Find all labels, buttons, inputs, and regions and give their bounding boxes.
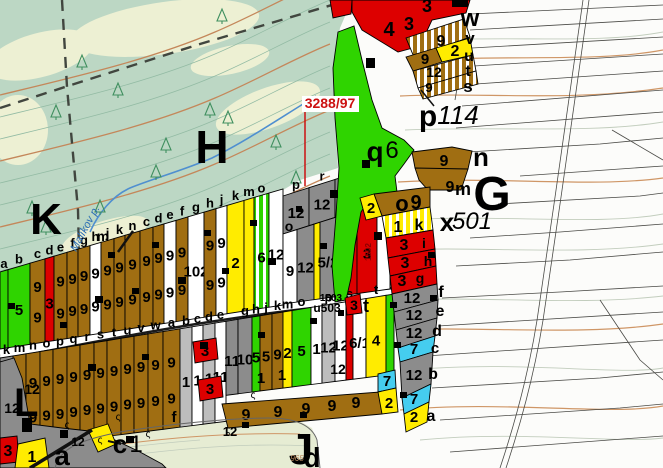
parcel-number: 9 (142, 289, 150, 306)
tick-mark (250, 220, 257, 226)
map-label: ς (251, 390, 256, 401)
map-label: ς (226, 425, 231, 436)
parcel-letter: b (182, 313, 190, 328)
parcel-letter: o (258, 180, 266, 195)
map-label: g (416, 270, 425, 286)
map-label: h (424, 253, 433, 269)
tick-mark (296, 206, 302, 212)
map-label: e (436, 303, 445, 320)
map-label: m (455, 179, 471, 199)
map-label: p (419, 100, 437, 133)
map-label: b (428, 366, 438, 383)
parcel-letter: t (374, 282, 379, 297)
parcel-number: 12 (406, 325, 423, 342)
forest-map-svg: a5b99c3d99e99f99g99h99j99k99n99c99d99e99… (0, 0, 663, 468)
parcel-letter: f (180, 204, 185, 219)
parcel-strip (80, 343, 94, 440)
parcel-letter: e (166, 207, 173, 222)
parcel-number: 9 (166, 247, 174, 264)
parcel-letter: c (143, 214, 150, 229)
parcel-number: 3 (45, 296, 53, 313)
parcel-number: 9 (80, 268, 88, 285)
parcel-number: 9 (206, 277, 214, 294)
parcel-letter: t (112, 324, 117, 339)
parcel-number: 2 (385, 395, 393, 412)
parcel-number: 3 (400, 237, 409, 254)
tick-mark (88, 364, 96, 371)
parcel-number: 1 (182, 374, 190, 391)
parcel-letter: a (0, 256, 8, 271)
map-label: 12 (71, 435, 85, 449)
parcel-number: 9 (42, 408, 50, 425)
parcel-number: 9 (154, 250, 162, 267)
parcel-number: 4 (372, 333, 381, 350)
parcel-number: 9 (242, 407, 251, 424)
parcel-number: 12 (426, 64, 442, 80)
map-label: 12 (4, 400, 20, 416)
parcel-letter: g (241, 303, 249, 318)
parcel-number: 9 (142, 253, 150, 270)
parcel-letter: n (29, 338, 37, 353)
parcel-letter: s (97, 327, 104, 342)
parcel-letter: h (206, 195, 214, 210)
parcel-number: 9 (166, 284, 174, 301)
tick-mark (200, 342, 208, 349)
parcel-number: 3 (401, 255, 410, 272)
parcel-strip (78, 246, 90, 337)
parcel-number: 9 (217, 275, 225, 292)
map-label: ς (116, 412, 121, 423)
parcel-strip (153, 224, 164, 325)
parcel-number: 10 (237, 351, 254, 368)
parcel-strip (204, 209, 216, 318)
tick-mark (390, 302, 397, 308)
map-label: c (431, 340, 439, 357)
tick-mark (400, 392, 407, 398)
parcel-strip (90, 242, 101, 335)
parcel-letter: m (282, 296, 294, 311)
tick-mark (60, 322, 67, 328)
tick-mark (430, 295, 437, 301)
map-label: w (460, 5, 480, 32)
parcel-letter: c (34, 246, 41, 261)
parcel-number: 3 (398, 273, 407, 290)
parcel-number: 9 (123, 361, 131, 378)
parcel-letter: p (56, 333, 64, 348)
map-label: 1503 (320, 293, 343, 304)
map-label: ς (146, 429, 151, 440)
parcel-number: 9 (68, 303, 76, 320)
map-canvas[interactable]: a5b99c3d99e99f99g99h99j99k99n99c99d99e99… (0, 0, 663, 468)
parcel-number: 2 (410, 409, 418, 426)
tick-mark (258, 332, 265, 338)
tick-mark (142, 354, 149, 360)
parcel-number: 12 (314, 197, 331, 214)
parcel-number: 12 (297, 260, 314, 277)
parcel-strip (121, 336, 134, 434)
parcel-letter: h (252, 301, 260, 316)
map-label: ς (98, 435, 103, 446)
map-label: 12 (24, 381, 40, 397)
parcel-number: 9 (206, 238, 214, 255)
map-label: 1 (129, 431, 142, 458)
tick-mark (374, 232, 382, 240)
parcel-strip (140, 227, 153, 327)
parcel-number: 9 (115, 259, 123, 276)
parcel-number: 9 (33, 279, 41, 296)
parcel-letter: v (137, 320, 145, 335)
parcel-letter: k (274, 298, 282, 313)
area-letter: H (195, 121, 228, 173)
parcel-number: 9 (328, 398, 337, 415)
tick-mark (320, 243, 327, 249)
parcel-strip (125, 231, 140, 330)
parcel-strip (30, 259, 45, 345)
tick-mark (95, 296, 103, 303)
parcel-letter: d (46, 242, 54, 257)
parcel-letter: k (3, 342, 11, 357)
parcel-strip (67, 249, 78, 338)
parcel-strip (0, 270, 8, 349)
tick-mark (330, 190, 338, 198)
map-label: s (463, 77, 472, 96)
parcel-letter: r (84, 329, 89, 344)
parcel-strip (134, 334, 148, 433)
parcel-letter: c (194, 311, 201, 326)
parcel-number: 9 (123, 397, 131, 414)
parcel-number: 9 (83, 402, 91, 419)
parcel-number: 9 (91, 265, 99, 282)
parcel-number: 2 (367, 200, 375, 217)
parcel-number: 3 (404, 14, 414, 34)
parcel-number: 5 (252, 350, 260, 367)
map-label: 965 (290, 454, 304, 463)
parcel-letter: k (116, 222, 124, 237)
tick-mark (60, 430, 68, 438)
parcel-number: 9 (178, 244, 186, 261)
tick-mark (394, 342, 401, 348)
parcel-number: 9 (115, 294, 123, 311)
parcel-number: 9 (56, 274, 64, 291)
parcel-number: 7 (383, 373, 391, 390)
map-label: ς (65, 420, 70, 431)
parcel-number: 9 (425, 80, 432, 95)
parcel-number: 9 (286, 263, 294, 280)
parcel-letter: g (192, 200, 200, 215)
map-label: d (432, 323, 442, 340)
parcel-letter: a (168, 315, 176, 330)
parcel-number: 3 (350, 297, 358, 313)
parcel-number: 1 (394, 219, 403, 236)
parcel-letter: m (243, 184, 255, 199)
parcel-number: 9 (33, 310, 41, 327)
tick-mark (242, 422, 249, 428)
parcel-number: 9 (137, 359, 145, 376)
parcel-number: 9 (352, 395, 361, 412)
tick-mark (222, 268, 229, 274)
parcel-number: 12 (404, 290, 421, 307)
tick-mark (152, 242, 159, 248)
parcel-number: 9 (56, 305, 64, 322)
map-label: t (363, 296, 369, 316)
tick-mark (8, 303, 15, 309)
parcel-number: 9 (178, 282, 186, 299)
map-label: d (303, 442, 320, 468)
parcel-number: 9 (128, 256, 136, 273)
map-label: 9 (446, 179, 455, 196)
parcel-number: 7 (410, 391, 418, 408)
map-label: c (113, 429, 127, 459)
parcel-number: 9 (440, 153, 449, 170)
parcel-number: 9 (273, 347, 281, 364)
tick-mark (132, 288, 139, 294)
map-label: o (395, 191, 408, 216)
map-label: m (97, 228, 109, 244)
parcel-strip (244, 198, 254, 312)
parcel-letter: j (219, 192, 224, 207)
map-label: a (54, 440, 70, 468)
parcel-number: 9 (42, 373, 50, 390)
parcel-number: 9 (110, 363, 118, 380)
parcel-number: 3 (206, 381, 214, 398)
parcel-number: 9 (151, 393, 159, 410)
parcel-number: 5 (262, 348, 270, 365)
parcel-letter: e (217, 307, 224, 322)
parcel-number: 3 (4, 443, 13, 460)
parcel-letter: d (155, 211, 163, 226)
parcel-letter: k (232, 188, 240, 203)
tick-mark (366, 58, 375, 68)
map-label: 1 (278, 367, 286, 384)
parcel-number: 9 (103, 296, 111, 313)
parcel-letter: b (15, 251, 23, 266)
tick-mark (178, 277, 186, 284)
parcel-number: 9 (80, 301, 88, 318)
parcel-number: 7 (410, 341, 418, 358)
parcel-number: 9 (167, 354, 175, 371)
parcel-letter: u (124, 322, 132, 337)
parcel-number: 9 (137, 395, 145, 412)
parcel-letter: p (292, 177, 300, 192)
map-label: a (427, 408, 436, 425)
parcel-number: 9 (167, 391, 175, 408)
parcel-number: 6 (257, 249, 265, 266)
parcel-number: 9 (69, 404, 77, 421)
map-label: 6 (385, 137, 398, 164)
parcel-number: 9 (151, 357, 159, 374)
parcel-number: 9 (56, 371, 64, 388)
map-label: n (473, 142, 489, 172)
area-letter: K (30, 195, 62, 244)
parcel-strip (148, 332, 163, 432)
parcel-number: 12 (406, 367, 423, 384)
parcel-letter: d (205, 309, 213, 324)
parcel-number: 9 (56, 406, 64, 423)
map-label: q (366, 136, 383, 167)
tick-mark (310, 318, 317, 324)
map-label: 1 (257, 370, 265, 387)
parcel-number: 4 (383, 19, 395, 41)
tick-mark (108, 252, 115, 258)
map-label: k (415, 217, 424, 234)
parcel-number: 9 (96, 365, 104, 382)
map-label: v (465, 29, 475, 48)
parcel-number: 9 (128, 292, 136, 309)
parcel-number: 9 (69, 369, 77, 386)
map-label: o (285, 218, 294, 234)
map-label: 1502 (364, 243, 373, 261)
map-label: 114 (437, 100, 478, 130)
parcel-strip (164, 220, 176, 323)
map-label: i (422, 235, 426, 251)
map-label: f (438, 284, 444, 301)
parcel-letter: j (263, 300, 268, 315)
parcel-callout: 3288/97 (305, 95, 356, 111)
parcel-letter: w (149, 318, 161, 333)
parcel-letter: o (298, 294, 306, 309)
parcel-number: 2 (231, 255, 239, 272)
parcel-number: 9 (154, 287, 162, 304)
parcel-number: 12 (406, 307, 423, 324)
parcel-letter: r (319, 169, 324, 184)
tick-mark (268, 258, 276, 265)
tick-mark (204, 230, 211, 236)
parcel-letter: o (43, 335, 51, 350)
parcel-letter: q (70, 331, 78, 346)
map-label: 9 (410, 192, 421, 214)
parcel-number: 3 (422, 0, 432, 16)
map-label: 501 (452, 208, 492, 235)
tick-mark (300, 412, 307, 418)
parcel-strip (94, 341, 107, 438)
parcel-number: 9 (103, 262, 111, 279)
parcel-number: 5 (297, 343, 305, 360)
parcel-number: 2 (451, 43, 460, 60)
parcel-strip (216, 205, 227, 315)
parcel-number: 9 (68, 271, 76, 288)
map-label: 12 (330, 361, 346, 377)
parcel-number: 5 (15, 302, 23, 319)
parcel-letter: m (14, 340, 26, 355)
parcel-number: 9 (217, 235, 225, 252)
parcel-number: 2 (283, 345, 291, 362)
parcel-number: 9 (96, 400, 104, 417)
